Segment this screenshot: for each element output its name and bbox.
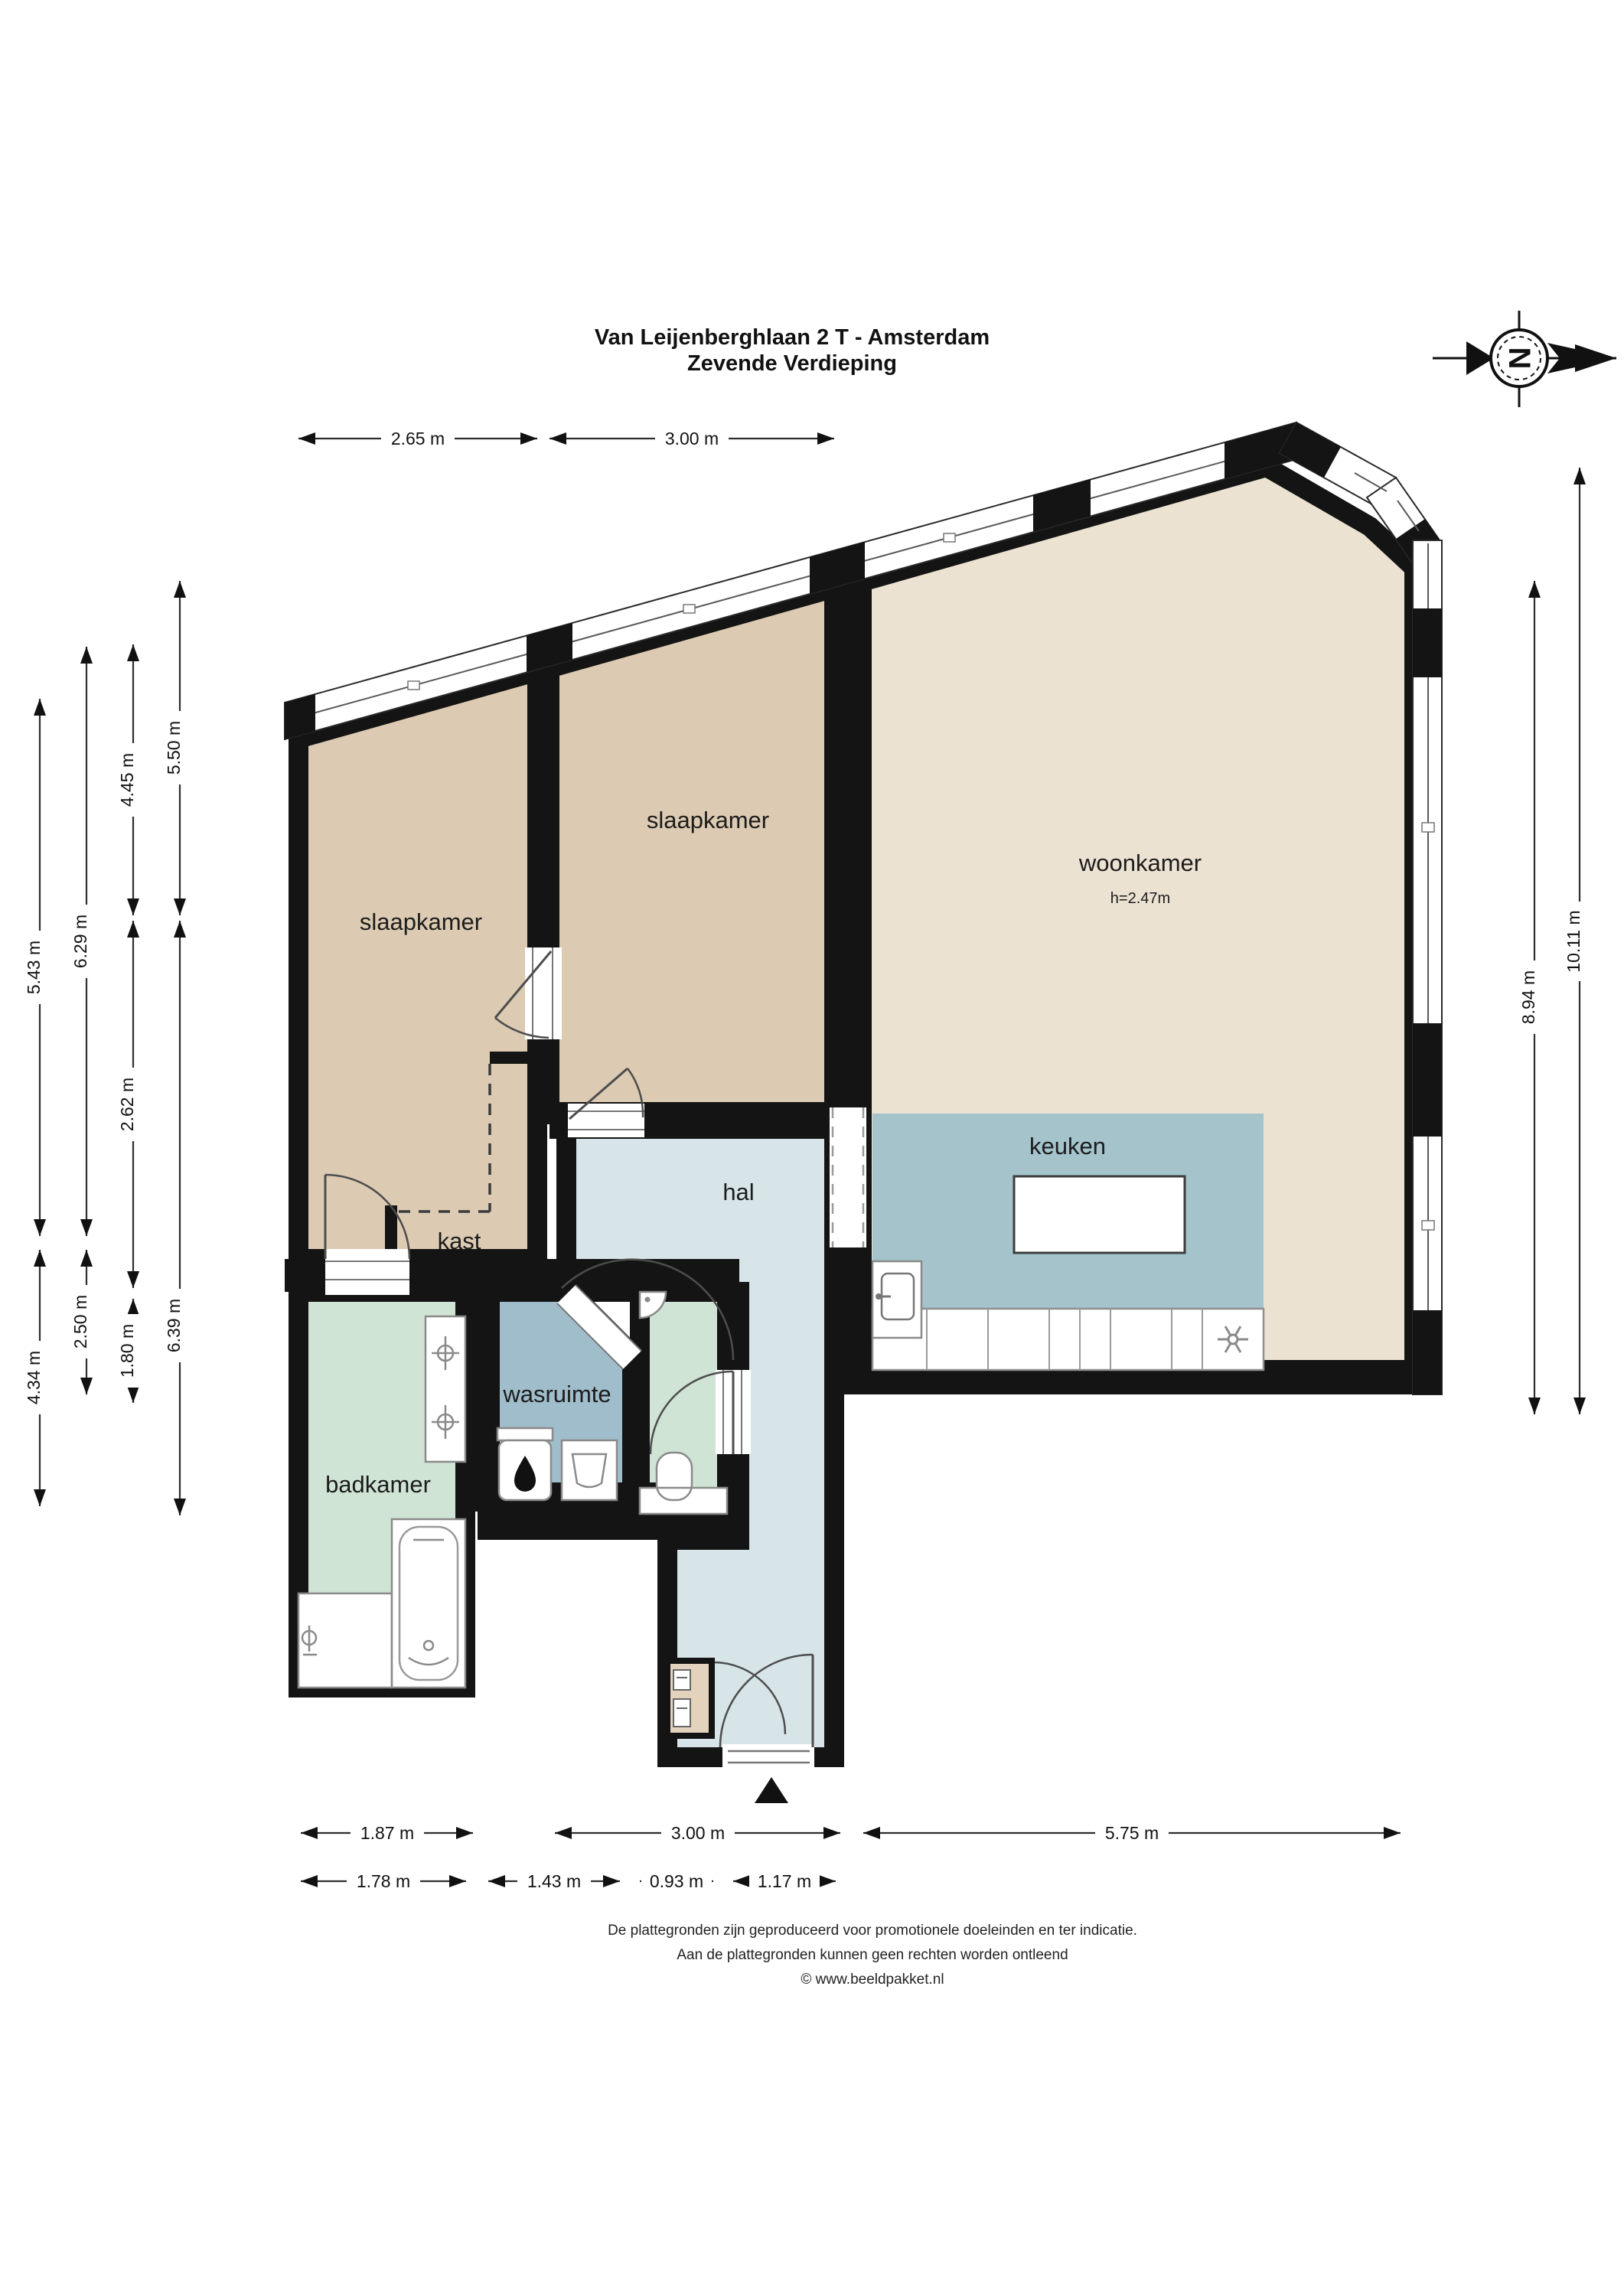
dimension-top-2: 3.00 m bbox=[549, 427, 834, 450]
svg-text:5.75 m: 5.75 m bbox=[1105, 1823, 1159, 1843]
shower-icon bbox=[298, 1593, 392, 1688]
dimension-bottom2-4: 1.17 m bbox=[733, 1870, 836, 1893]
room-label-keuken: keuken bbox=[1029, 1133, 1106, 1159]
dimension-bottom2-3: 0.93 m bbox=[640, 1870, 713, 1893]
svg-text:2.62 m: 2.62 m bbox=[117, 1078, 137, 1131]
dimension-bottom2-2: 1.43 m bbox=[488, 1870, 620, 1893]
svg-text:1.78 m: 1.78 m bbox=[357, 1871, 410, 1891]
kitchen-counter bbox=[872, 1309, 1264, 1370]
svg-text:1.80 m: 1.80 m bbox=[117, 1324, 137, 1378]
svg-text:8.94 m: 8.94 m bbox=[1518, 970, 1538, 1024]
room-label-badkamer: badkamer bbox=[325, 1471, 431, 1498]
dimension-bottom2-1: 1.78 m bbox=[301, 1870, 466, 1893]
svg-text:4.45 m: 4.45 m bbox=[117, 753, 137, 807]
room-label-kast: kast bbox=[438, 1228, 481, 1254]
dimension-right-1: 8.94 m bbox=[1518, 581, 1546, 1414]
room-slaapkamer-midden bbox=[549, 588, 834, 1114]
dimension-right-2: 10.11 m bbox=[1564, 468, 1591, 1414]
dimension-left4-2: 6.39 m bbox=[164, 921, 191, 1515]
svg-text:5.43 m: 5.43 m bbox=[24, 941, 44, 994]
dimension-left3-2: 2.62 m bbox=[117, 921, 145, 1288]
footer-disclaimer: De plattegronden zijn geproduceerd voor … bbox=[608, 1923, 1137, 1988]
wall-toilet-bottom bbox=[628, 1512, 739, 1540]
room-label-woonkamer-height: h=2.47m bbox=[1110, 890, 1170, 907]
title-line2: Zevende Verdieping bbox=[687, 351, 897, 376]
compass-letter: N bbox=[1502, 347, 1536, 370]
svg-text:1.17 m: 1.17 m bbox=[758, 1871, 811, 1891]
svg-text:1.87 m: 1.87 m bbox=[360, 1823, 414, 1843]
window-band-right bbox=[1413, 540, 1442, 1394]
wall-badkamer-wasruimte bbox=[465, 1282, 497, 1512]
svg-text:3.00 m: 3.00 m bbox=[665, 429, 719, 448]
dimension-left1-2: 4.34 m bbox=[24, 1250, 51, 1506]
wall-woonkamer-bottom bbox=[846, 1370, 1428, 1394]
dimension-bottom1-3: 5.75 m bbox=[863, 1821, 1401, 1844]
dimension-left2-2: 2.50 m bbox=[70, 1250, 98, 1394]
vanity-icon bbox=[426, 1316, 465, 1462]
plan-title: Van Leijenberghlaan 2 T - Amsterdam Zeve… bbox=[595, 325, 990, 376]
dimension-left3-3: 1.80 m bbox=[117, 1299, 145, 1403]
dimension-bottom1-1: 1.87 m bbox=[301, 1821, 473, 1844]
svg-text:5.50 m: 5.50 m bbox=[164, 721, 184, 775]
dimension-left3-1: 4.45 m bbox=[117, 644, 145, 915]
bathtub-icon bbox=[392, 1519, 465, 1688]
water-heater-icon bbox=[497, 1428, 553, 1500]
room-label-hal: hal bbox=[722, 1179, 754, 1205]
room-label-slaapkamer-midden: slaapkamer bbox=[647, 807, 769, 833]
dimension-left1-1: 5.43 m bbox=[24, 699, 51, 1236]
dimension-top-1: 2.65 m bbox=[298, 427, 537, 450]
entrance-arrow-icon bbox=[755, 1777, 788, 1803]
kitchen-island bbox=[1014, 1176, 1185, 1253]
north-arrow-icon: N bbox=[1433, 311, 1616, 407]
floorplan-page: Van Leijenberghlaan 2 T - Amsterdam Zeve… bbox=[0, 0, 1624, 2296]
svg-text:10.11 m: 10.11 m bbox=[1564, 910, 1583, 972]
wall-hal-woonkamer bbox=[834, 559, 862, 1394]
svg-text:4.34 m: 4.34 m bbox=[24, 1351, 44, 1404]
room-label-slaapkamer-links: slaapkamer bbox=[360, 908, 482, 935]
kitchen-sink-icon bbox=[872, 1261, 921, 1338]
svg-text:3.00 m: 3.00 m bbox=[671, 1823, 725, 1843]
dimension-left2-1: 6.29 m bbox=[70, 647, 98, 1236]
footer-line2: Aan de plattegronden kunnen geen rechten… bbox=[677, 1947, 1068, 1963]
dimension-bottom1-2: 3.00 m bbox=[555, 1821, 840, 1844]
svg-text:2.65 m: 2.65 m bbox=[391, 429, 445, 448]
svg-text:6.39 m: 6.39 m bbox=[164, 1299, 184, 1352]
washing-machine-icon bbox=[562, 1440, 617, 1500]
title-line1: Van Leijenberghlaan 2 T - Amsterdam bbox=[595, 325, 990, 350]
room-label-woonkamer: woonkamer bbox=[1078, 850, 1202, 876]
svg-text:1.43 m: 1.43 m bbox=[527, 1871, 581, 1891]
meterkast bbox=[667, 1661, 712, 1736]
room-label-wasruimte: wasruimte bbox=[502, 1381, 611, 1407]
wall-kast-top bbox=[490, 1052, 557, 1064]
svg-text:6.29 m: 6.29 m bbox=[70, 915, 90, 968]
dimension-left4-1: 5.50 m bbox=[164, 581, 191, 915]
room-slaapkamer-links bbox=[298, 671, 537, 1259]
footer-line1: De plattegronden zijn geproduceerd voor … bbox=[608, 1923, 1137, 1939]
floorplan-canvas: Van Leijenberghlaan 2 T - Amsterdam Zeve… bbox=[0, 0, 1624, 2296]
footer-line3: © www.beeldpakket.nl bbox=[801, 1971, 944, 1988]
svg-text:2.50 m: 2.50 m bbox=[70, 1295, 90, 1349]
svg-text:0.93 m: 0.93 m bbox=[650, 1871, 703, 1891]
